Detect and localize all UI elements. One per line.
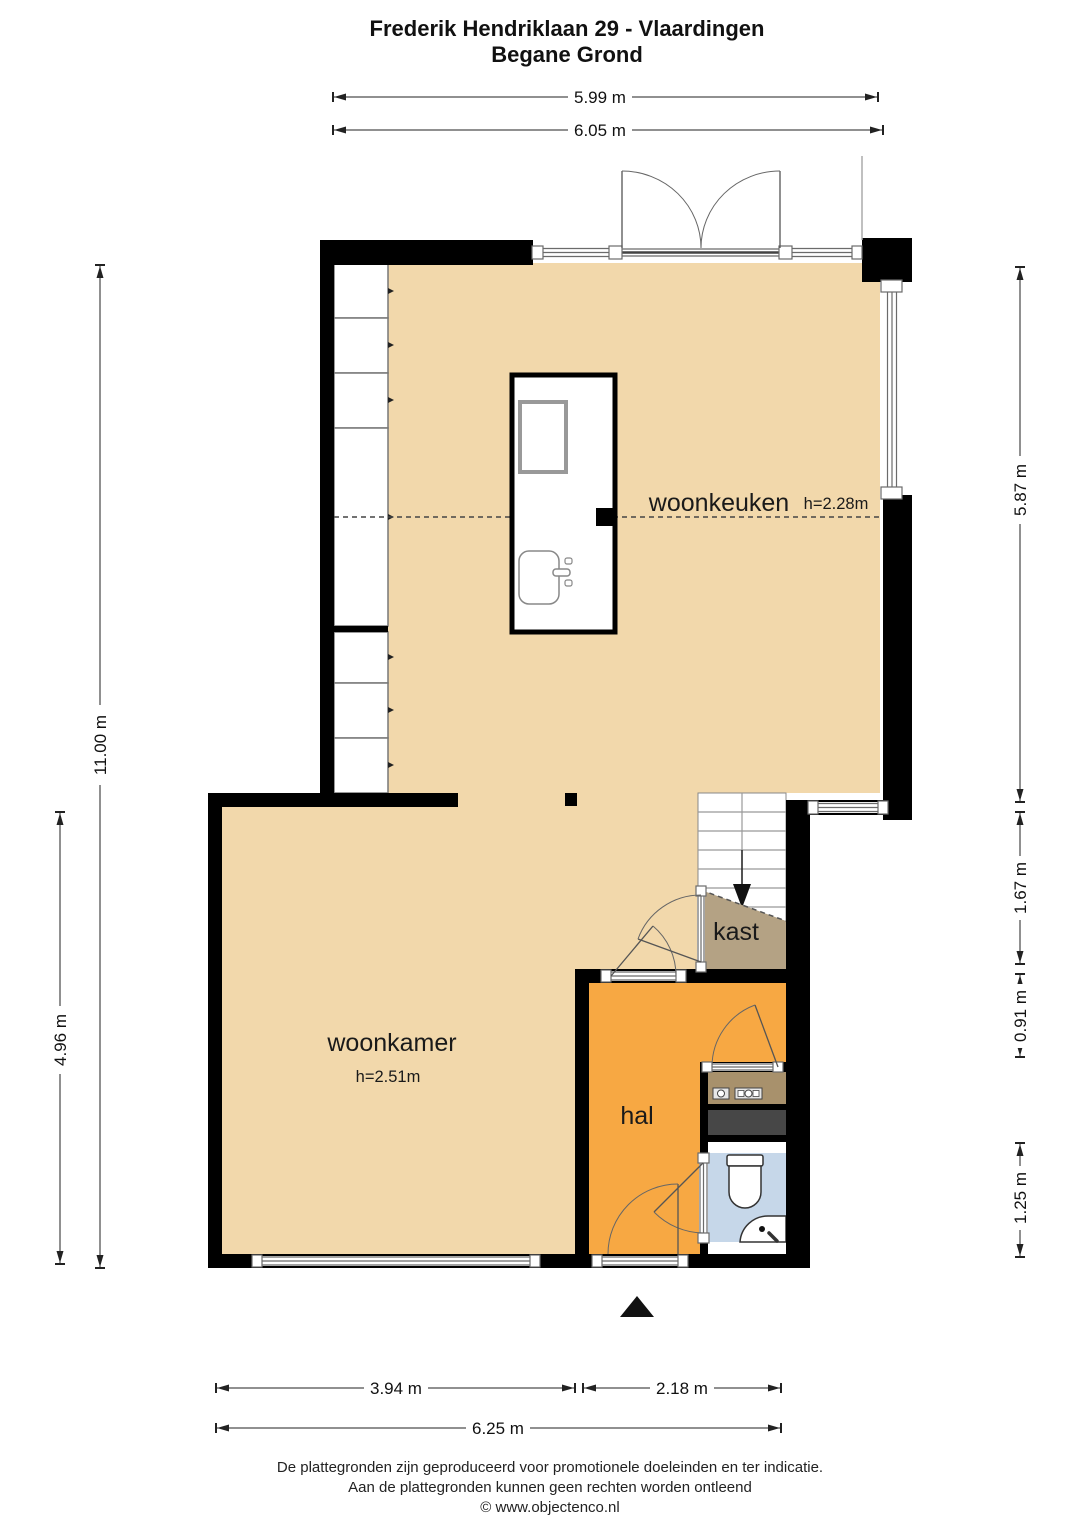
footer-copyright: © www.objectenco.nl (480, 1499, 619, 1516)
window-top-left (543, 247, 609, 258)
island-column (596, 508, 615, 526)
floorplan-drawing: Frederik Hendriklaan 29 - Vlaardingen Be… (0, 0, 1080, 1527)
dim-top-outer: 6.05 m (333, 120, 883, 140)
toilet-icon (727, 1155, 763, 1208)
window-post (852, 246, 862, 259)
woonkeuken-label: woonkeuken (648, 489, 789, 517)
dim-right-toilet: 1.25 m (1009, 1143, 1030, 1257)
dim-bottom-right: 2.18 m (583, 1378, 781, 1398)
window-top-right (792, 247, 852, 258)
svg-text:4.96 m: 4.96 m (51, 1014, 70, 1066)
dim-top-inner: 5.99 m (333, 87, 878, 107)
dim-right-kast: 0.91 m (1009, 974, 1030, 1057)
shaft-wall-top (708, 1104, 786, 1110)
plan-title: Frederik Hendriklaan 29 - Vlaardingen (370, 16, 765, 41)
front-door-threshold (592, 1255, 688, 1267)
window-woonkamer-bottom (252, 1255, 540, 1267)
shaft-wall-bottom (708, 1135, 786, 1142)
svg-text:5.99 m: 5.99 m (574, 88, 626, 107)
window-post (609, 246, 622, 259)
dim-right-kitchen: 5.87 m (1009, 267, 1030, 802)
shaft (708, 1110, 786, 1135)
window-post (779, 246, 792, 259)
window-kitchen-bottom-right (808, 801, 888, 814)
window-post (532, 246, 543, 259)
woonkamer-label: woonkamer (326, 1029, 456, 1057)
floorplan-page: Frederik Hendriklaan 29 - Vlaardingen Be… (0, 0, 1080, 1527)
kast-label: kast (713, 918, 759, 946)
svg-text:1.67 m: 1.67 m (1011, 862, 1030, 914)
window-right-wall (881, 280, 902, 499)
dim-left-total: 11.00 m (89, 265, 110, 1268)
kitchen-cabinets (334, 264, 388, 793)
dim-left-lower: 4.96 m (49, 812, 70, 1264)
toilet-room (708, 1142, 786, 1254)
dim-right-stairs: 1.67 m (1009, 812, 1030, 964)
woonkamer-height-label: h=2.51m (356, 1068, 421, 1086)
cooktop-icon (520, 402, 566, 472)
svg-text:3.94 m: 3.94 m (370, 1379, 422, 1398)
dim-bottom-left: 3.94 m (216, 1378, 575, 1398)
meter-cupboard-door-threshold (702, 1062, 783, 1072)
footer-disclaimer-1: De plattegronden zijn geproduceerd voor … (277, 1459, 823, 1476)
hal-label: hal (620, 1102, 653, 1130)
svg-text:6.05 m: 6.05 m (574, 121, 626, 140)
french-door-swing (622, 171, 780, 248)
svg-text:0.91 m: 0.91 m (1011, 990, 1030, 1042)
meter-cupboard (708, 1072, 786, 1104)
svg-text:2.18 m: 2.18 m (656, 1379, 708, 1398)
plan-subtitle: Begane Grond (491, 42, 643, 67)
entrance-arrow-icon (620, 1296, 654, 1317)
dim-bottom-total: 6.25 m (216, 1418, 781, 1438)
french-door-threshold (622, 247, 779, 258)
woonkeuken-height-label: h=2.28m (804, 495, 869, 513)
kitchen-island (512, 375, 615, 632)
footer-disclaimer-2: Aan de plattegronden kunnen geen rechten… (348, 1479, 752, 1496)
electric-meter-icon (713, 1088, 762, 1099)
kast-door-threshold (696, 886, 706, 972)
cabinet-divider (334, 626, 388, 632)
svg-text:1.25 m: 1.25 m (1011, 1172, 1030, 1224)
svg-text:11.00 m: 11.00 m (91, 715, 110, 775)
svg-text:5.87 m: 5.87 m (1011, 464, 1030, 516)
svg-text:6.25 m: 6.25 m (472, 1419, 524, 1438)
